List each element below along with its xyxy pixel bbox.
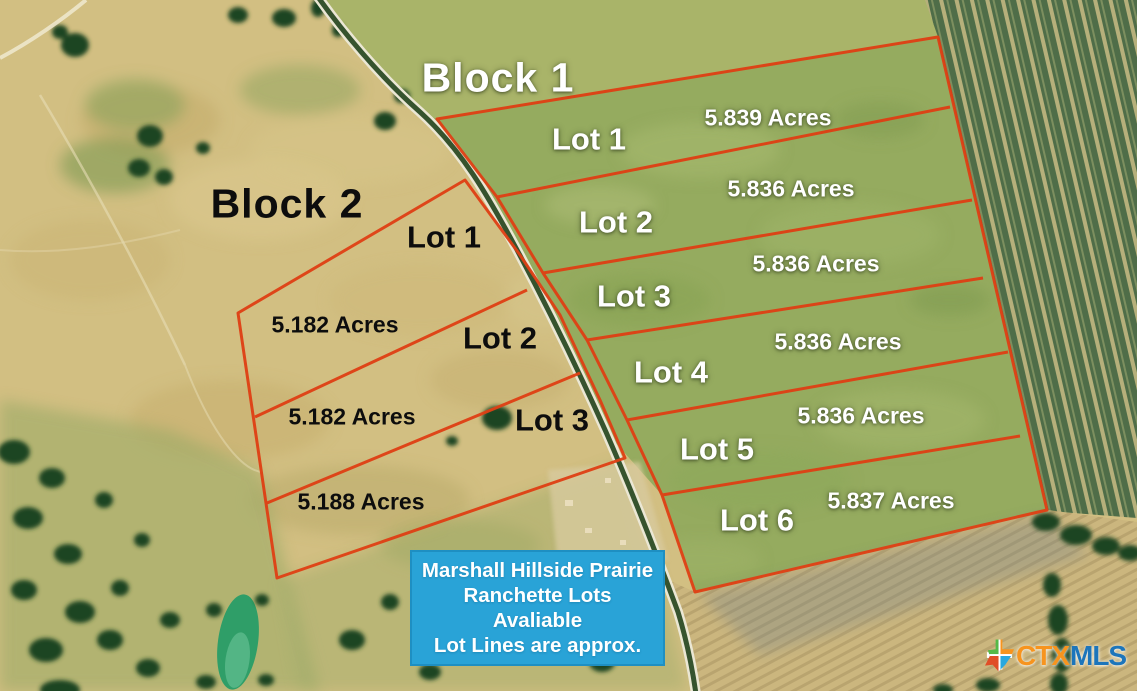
info-box-line-1: Marshall Hillside Prairie bbox=[422, 558, 653, 583]
info-box-line-3: Avaliable bbox=[493, 608, 582, 633]
block-1-title: Block 1 bbox=[422, 58, 575, 99]
block2-lot1-label: Lot 1 bbox=[407, 222, 481, 253]
block1-lot5-label: Lot 5 bbox=[680, 434, 754, 465]
ctxmls-logo: CTXMLS bbox=[984, 636, 1126, 676]
block1-lot2-label: Lot 2 bbox=[579, 207, 653, 238]
block1-lot3-label: Lot 3 bbox=[597, 281, 671, 312]
logo-text-mls: MLS bbox=[1070, 640, 1126, 672]
block1-lot2-acreage: 5.836 Acres bbox=[727, 178, 854, 201]
block2-lot3-label: Lot 3 bbox=[515, 405, 589, 436]
block1-lot3-acreage: 5.836 Acres bbox=[752, 253, 879, 276]
block1-lot5-acreage: 5.836 Acres bbox=[797, 405, 924, 428]
info-box: Marshall Hillside Prairie Ranchette Lots… bbox=[410, 550, 665, 666]
texas-cross-icon bbox=[984, 639, 1015, 673]
block-2-title: Block 2 bbox=[211, 184, 364, 225]
block1-lot1-acreage: 5.839 Acres bbox=[704, 107, 831, 130]
block1-lot1-label: Lot 1 bbox=[552, 124, 626, 155]
block1-lot4-label: Lot 4 bbox=[634, 357, 708, 388]
info-box-line-2: Ranchette Lots bbox=[463, 583, 611, 608]
block2-lot2-label: Lot 2 bbox=[463, 323, 537, 354]
aerial-lot-map: Block 1 Block 2 Lot 1 5.839 Acres Lot 2 … bbox=[0, 0, 1137, 691]
block1-lot6-acreage: 5.837 Acres bbox=[827, 490, 954, 513]
block1-lot4-acreage: 5.836 Acres bbox=[774, 331, 901, 354]
info-box-line-4: Lot Lines are approx. bbox=[434, 633, 641, 658]
block2-lot1-acreage: 5.182 Acres bbox=[271, 314, 398, 337]
block1-lot6-label: Lot 6 bbox=[720, 505, 794, 536]
block2-lot3-acreage: 5.188 Acres bbox=[297, 491, 424, 514]
block2-lot2-acreage: 5.182 Acres bbox=[288, 406, 415, 429]
logo-text-ctx: CTX bbox=[1016, 640, 1069, 672]
